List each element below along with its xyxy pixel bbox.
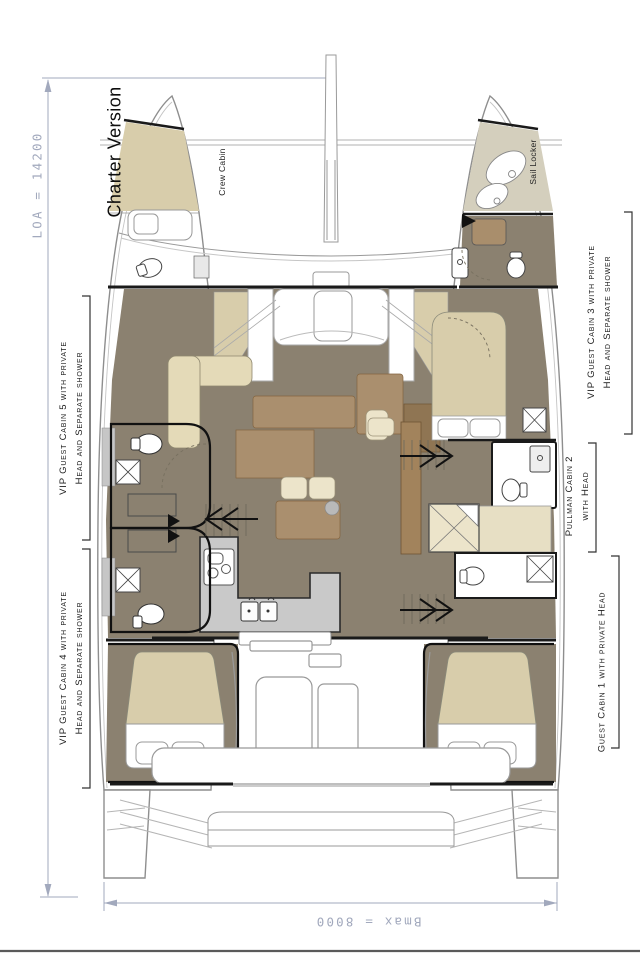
crew-pillow [134, 214, 158, 234]
cabin1-label: Guest Cabin 1 with private Head [597, 592, 608, 753]
cabin3-bracket [624, 212, 632, 434]
shower-cabin3 [523, 408, 546, 432]
locker-cabinet [472, 219, 506, 245]
left-transom [104, 790, 150, 878]
left-aft-bed [126, 652, 224, 724]
shower-cabin1 [527, 556, 553, 582]
toilet-cabin1 [460, 567, 484, 585]
cabin1-bracket [611, 556, 619, 748]
bowsprit [324, 55, 338, 242]
sail-locker-label: Sail Locker [528, 139, 538, 184]
cushion-1 [281, 477, 307, 499]
aft-bench [152, 748, 510, 784]
fwd-sink [452, 248, 468, 278]
transom-steps [107, 800, 556, 848]
right-aft-bed [438, 652, 536, 724]
shower-cabin5 [116, 460, 140, 484]
loa-dimension-label: LOA = 14200 [30, 132, 45, 239]
fwd-toilet [507, 252, 525, 278]
cabin4-label: VIP Guest Cabin 4 with private Head and … [56, 591, 88, 745]
salon-sofa-back [253, 396, 355, 428]
pullman2-label: Pullman Cabin 2 with Head [562, 456, 594, 537]
boat-drawing [0, 0, 640, 979]
cabin3-label: VIP Guest Cabin 3 with private Head and … [584, 245, 616, 399]
cushion-2 [309, 477, 335, 499]
shower-cabin4 [116, 568, 140, 592]
fwd-cockpit-table [314, 291, 352, 341]
salon-table [236, 430, 314, 478]
cabin5-label: VIP Guest Cabin 5 with private Head and … [56, 341, 88, 495]
pullman-lower-berth [479, 506, 551, 552]
left-settee-b [168, 356, 200, 448]
bmax-dimension-label: Bmax = 8000 [315, 915, 422, 930]
pullman-bunk [429, 504, 479, 552]
bmax-dimension [104, 882, 557, 911]
right-transom [512, 790, 558, 878]
charter-version-label: Charter Version [105, 86, 126, 217]
floorplan-sheet: LOA = 14200 Charter Version Crew Cabin S… [0, 0, 640, 979]
crew-cabin-label: Crew Cabin [217, 148, 227, 195]
aft-platform [208, 812, 454, 830]
